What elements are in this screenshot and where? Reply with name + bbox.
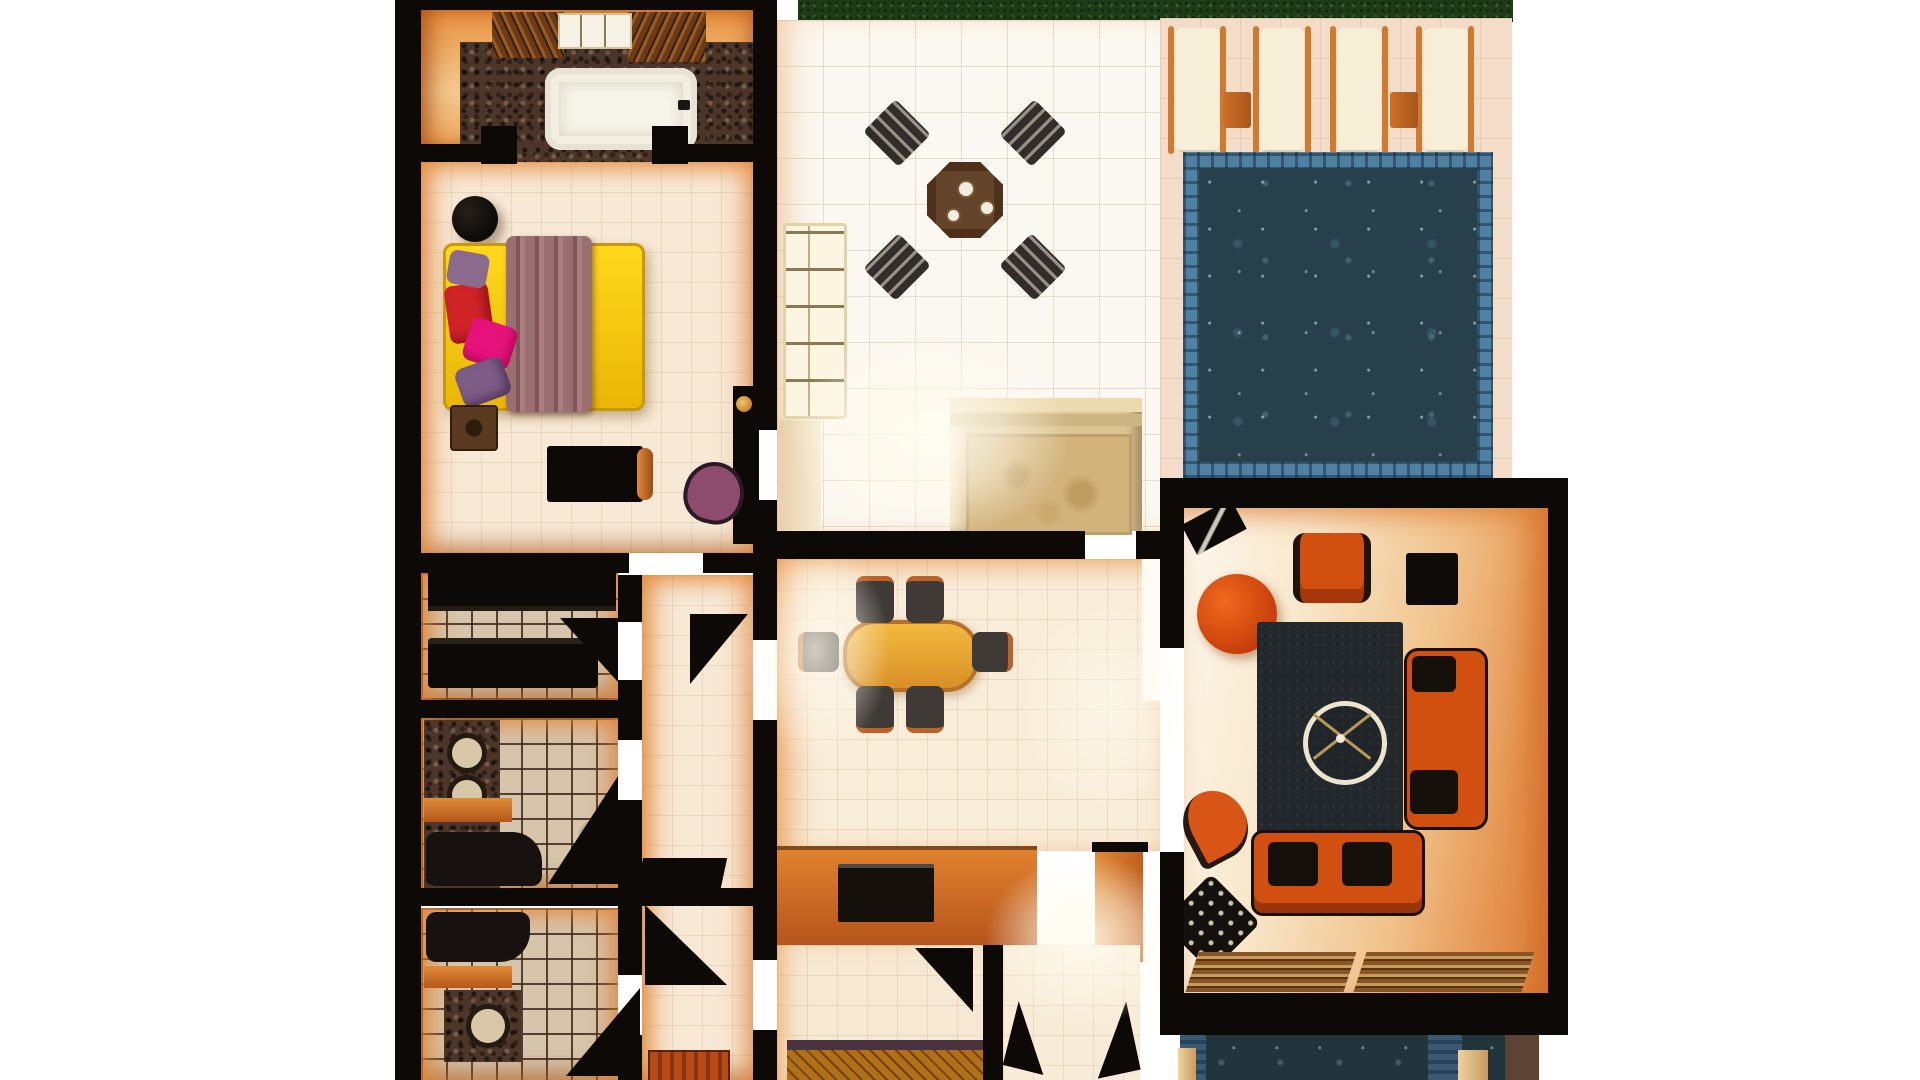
bath1-shelf — [424, 798, 512, 822]
wall-outer-left — [395, 0, 421, 1080]
wall-patio-dining-left — [777, 531, 1085, 559]
wall-closet-bath1 — [395, 700, 623, 718]
window-blinds-left — [492, 12, 564, 58]
wall-inner-vert-d — [618, 1035, 642, 1080]
spa-step-2 — [950, 414, 1142, 426]
wall-post-1 — [481, 126, 517, 164]
lounger-cushion — [1423, 28, 1467, 152]
wall-pool-bottom — [1160, 478, 1568, 508]
lounger-rail — [1416, 26, 1422, 154]
wall-top-edge — [395, 0, 777, 10]
lounger-rail — [1220, 26, 1226, 154]
round-pouf — [452, 196, 498, 242]
dining-chair-top-2 — [906, 576, 944, 623]
floor-plan-render — [0, 0, 1920, 1080]
french-door-panel — [783, 223, 847, 419]
bed-pillow-mauve — [445, 249, 490, 289]
sofa-horizontal-cushion-1 — [1268, 842, 1318, 886]
wall-living-bottom — [1160, 993, 1568, 1035]
wall-inner-vert-c — [618, 800, 642, 975]
half-wall-highlight — [1142, 559, 1160, 701]
wall-bed-closet-right — [703, 553, 753, 573]
spa-step-1 — [950, 398, 1142, 412]
sun-lounger-3 — [1330, 26, 1388, 154]
window-blinds-right — [628, 12, 706, 62]
lounger-side-table-1 — [1223, 92, 1251, 128]
dining-chair-top-1 — [856, 576, 894, 623]
hall-shelf — [637, 858, 727, 888]
sofa-horizontal-cushion-2 — [1342, 842, 1392, 886]
patio-cup-2 — [979, 200, 995, 216]
lounger-rail — [1305, 26, 1311, 154]
dining-chair-bottom-2 — [906, 686, 944, 733]
bathtub-faucet — [678, 100, 690, 110]
lounger-rail — [1382, 26, 1388, 154]
window-blinds-group-2 — [1354, 952, 1535, 992]
window-sill — [558, 13, 632, 49]
dining-chair-left — [798, 632, 839, 672]
pool-water — [1199, 168, 1477, 462]
wall-post-2 — [652, 126, 688, 164]
dining-chair-right — [972, 632, 1013, 672]
wall-leftblock-right-d — [753, 1030, 777, 1080]
water-tile-edge-right — [1428, 1033, 1462, 1080]
wall-bed-closet-left — [395, 553, 629, 573]
spa-basin — [966, 434, 1132, 535]
entry-mat — [787, 1050, 985, 1080]
dining-chair-bottom-1 — [856, 686, 894, 733]
bed-throw-blanket — [506, 236, 592, 412]
lounger-cushion — [1337, 28, 1381, 152]
bath2-shelf — [424, 966, 512, 988]
bath2-tub — [426, 912, 530, 962]
living-armchair — [1293, 533, 1371, 603]
kitchen-cabinet — [779, 420, 821, 530]
nightstand-speaker — [450, 405, 498, 451]
wall-bath-bed-right — [688, 144, 753, 162]
sun-lounger-4 — [1416, 26, 1474, 154]
lounger-side-table-2 — [1390, 92, 1418, 128]
hall-rug — [648, 1050, 730, 1080]
lounger-cushion — [1175, 28, 1219, 152]
patio-cup-3 — [946, 208, 961, 223]
wall-leftblock-right-a — [753, 0, 777, 430]
water-post-1 — [1178, 1048, 1196, 1080]
bath1-tub — [426, 832, 542, 886]
lounger-rail — [1468, 26, 1474, 154]
water-post-2 — [1458, 1050, 1488, 1080]
wall-inner-vert-a — [618, 575, 642, 622]
sofa-vertical-cushion-top — [1412, 656, 1456, 692]
wall-foyer-divider — [983, 945, 1003, 1080]
dining-table — [843, 620, 979, 692]
foyer-orange-wall-cap — [1092, 842, 1148, 852]
lounger-rail — [1168, 26, 1174, 154]
water-edge-wall — [1505, 1033, 1539, 1080]
wall-leftblock-right-b — [753, 500, 777, 640]
sink-basin-3 — [466, 1004, 510, 1048]
wall-center-living-top — [1160, 486, 1184, 648]
window-blinds-group-1 — [1186, 952, 1357, 992]
patio-table — [927, 162, 1003, 238]
entry-mat-border — [787, 1040, 985, 1050]
wardrobe-knob — [736, 396, 752, 412]
lounger-rail — [1330, 26, 1336, 154]
tv-console — [838, 864, 934, 922]
wall-outer-right — [1548, 478, 1568, 1035]
closet-counter — [428, 573, 616, 611]
sun-lounger-1 — [1168, 26, 1226, 154]
wall-leftblock-right-c — [753, 720, 777, 960]
closet-bench — [428, 638, 598, 688]
sofa-vertical-cushion-bottom — [1410, 770, 1458, 814]
wall-bath1-bath2 — [395, 888, 753, 906]
living-side-table — [1406, 553, 1458, 605]
dresser — [547, 446, 643, 502]
patio-cup-1 — [957, 180, 975, 198]
lounger-rail — [1253, 26, 1259, 154]
sink-basin-1 — [447, 733, 487, 773]
sun-lounger-2 — [1253, 26, 1311, 154]
wall-inner-vert-b — [618, 680, 642, 740]
ceiling-fan-hub — [1336, 734, 1345, 743]
dining-room — [777, 559, 1160, 851]
lounger-cushion — [1260, 28, 1304, 152]
dresser-roll-cushion — [637, 448, 653, 500]
